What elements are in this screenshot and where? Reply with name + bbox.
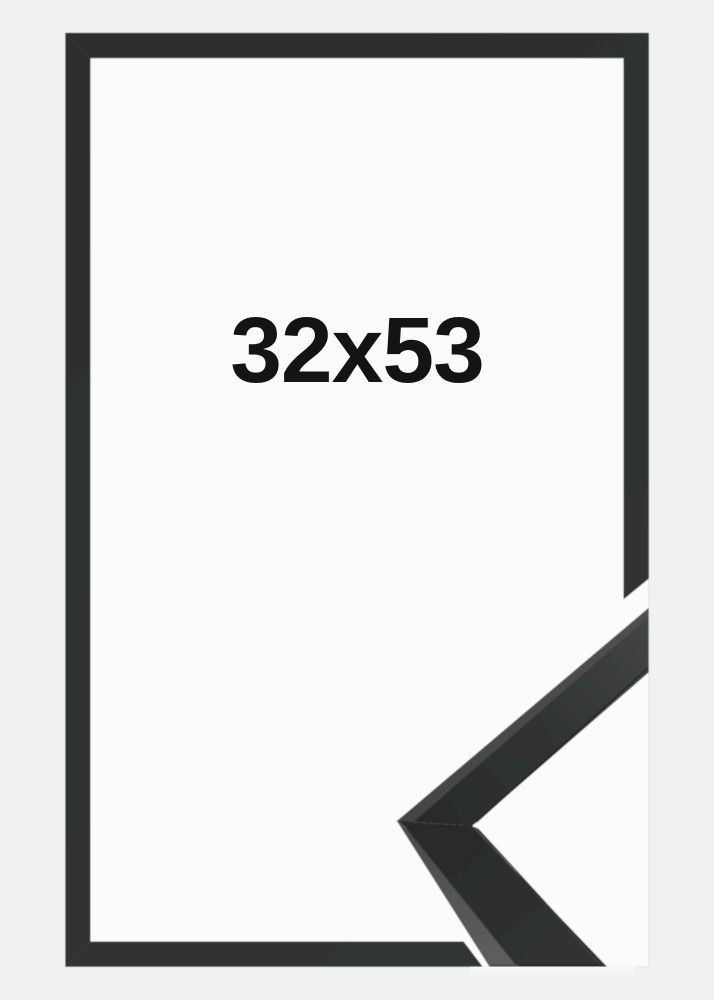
svg-text:32x53: 32x53 [230, 298, 484, 402]
